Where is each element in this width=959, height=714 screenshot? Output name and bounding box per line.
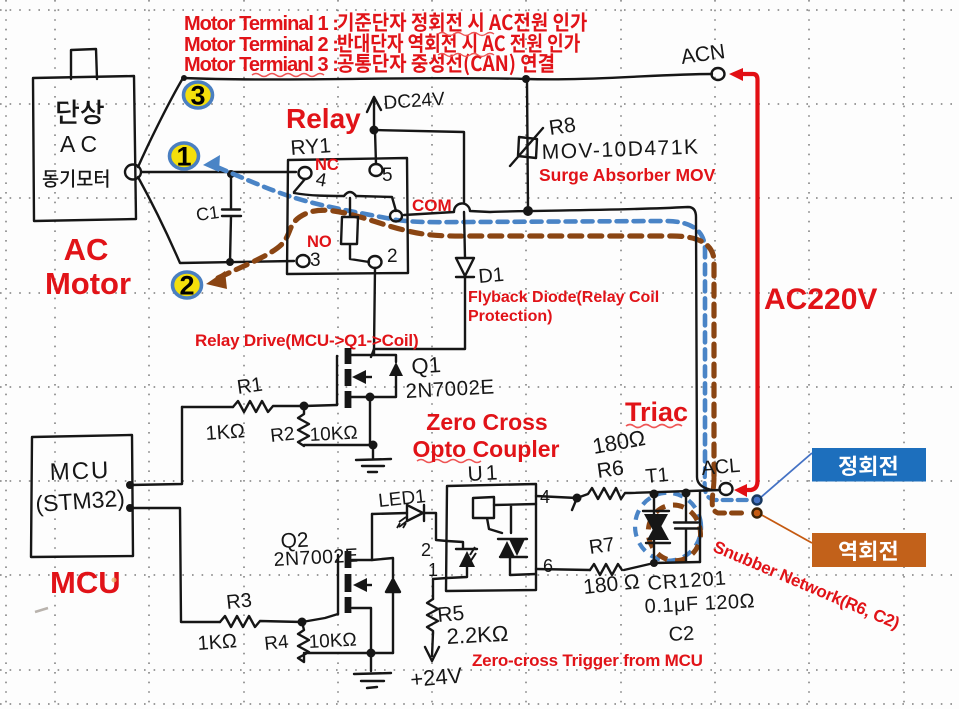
svg-text:Flyback Diode(Relay Coil: Flyback Diode(Relay Coil xyxy=(468,289,659,306)
svg-text:AC: AC xyxy=(64,232,109,267)
svg-text:Motor Terminal 1 :: Motor Terminal 1 : xyxy=(184,13,338,35)
svg-text:R4: R4 xyxy=(263,632,290,655)
svg-text:DC24V: DC24V xyxy=(383,89,446,114)
svg-text:NC: NC xyxy=(315,156,339,174)
svg-text:R2: R2 xyxy=(269,424,295,447)
svg-text:Opto Coupler: Opto Coupler xyxy=(413,436,560,462)
svg-text:R6: R6 xyxy=(595,456,625,483)
svg-text:10KΩ: 10KΩ xyxy=(308,630,357,653)
svg-text:NO: NO xyxy=(307,233,332,251)
svg-text:1: 1 xyxy=(428,560,438,580)
svg-text:R8: R8 xyxy=(547,113,577,140)
svg-text:Triac: Triac xyxy=(625,397,688,427)
svg-text:Motor Terminal 2 :: Motor Terminal 2 : xyxy=(184,34,338,56)
svg-text:Zero Cross: Zero Cross xyxy=(426,409,547,435)
svg-text:MCU: MCU xyxy=(50,565,121,600)
svg-text:Zero-cross Trigger from MCU: Zero-cross Trigger from MCU xyxy=(472,651,703,670)
svg-text:3: 3 xyxy=(190,81,205,111)
svg-text:10KΩ: 10KΩ xyxy=(309,423,358,446)
svg-text:Motor: Motor xyxy=(45,266,131,301)
svg-text:2: 2 xyxy=(179,271,194,301)
svg-text:1KΩ: 1KΩ xyxy=(197,630,238,655)
svg-text:1: 1 xyxy=(176,142,191,172)
svg-text:R7: R7 xyxy=(588,534,616,559)
svg-text:Protection): Protection) xyxy=(468,308,552,325)
svg-text:2: 2 xyxy=(421,540,431,560)
svg-text:3: 3 xyxy=(310,250,321,271)
svg-text:R1: R1 xyxy=(236,374,264,399)
svg-text:2: 2 xyxy=(387,246,398,267)
svg-text:MCU: MCU xyxy=(49,457,111,486)
svg-text:2.2KΩ: 2.2KΩ xyxy=(446,621,509,649)
svg-text:Relay: Relay xyxy=(286,103,361,134)
svg-text:R3: R3 xyxy=(225,589,253,614)
svg-text:Q1: Q1 xyxy=(411,352,442,379)
svg-text:C2: C2 xyxy=(668,623,695,646)
svg-text:2N7002E: 2N7002E xyxy=(405,375,495,403)
svg-text:1KΩ: 1KΩ xyxy=(205,420,246,445)
svg-text:2N7002E: 2N7002E xyxy=(273,545,359,571)
svg-text:4: 4 xyxy=(540,487,550,507)
svg-text:Relay Drive(MCU->Q1->Coil): Relay Drive(MCU->Q1->Coil) xyxy=(195,331,418,350)
svg-text:Surge Absorber MOV: Surge Absorber MOV xyxy=(539,165,716,185)
svg-text:Motor Termianl 3 :: Motor Termianl 3 : xyxy=(184,54,338,76)
svg-text:5: 5 xyxy=(382,165,393,186)
svg-text:D1: D1 xyxy=(478,264,505,288)
svg-text:C1: C1 xyxy=(195,202,221,225)
svg-text:+24V: +24V xyxy=(409,663,463,692)
svg-text:A C: A C xyxy=(60,131,97,157)
svg-text:U1: U1 xyxy=(467,461,501,486)
svg-text:6: 6 xyxy=(543,556,553,576)
svg-text:T1: T1 xyxy=(645,464,670,488)
svg-text:AC220V: AC220V xyxy=(764,283,877,316)
svg-text:ACL: ACL xyxy=(701,455,742,480)
